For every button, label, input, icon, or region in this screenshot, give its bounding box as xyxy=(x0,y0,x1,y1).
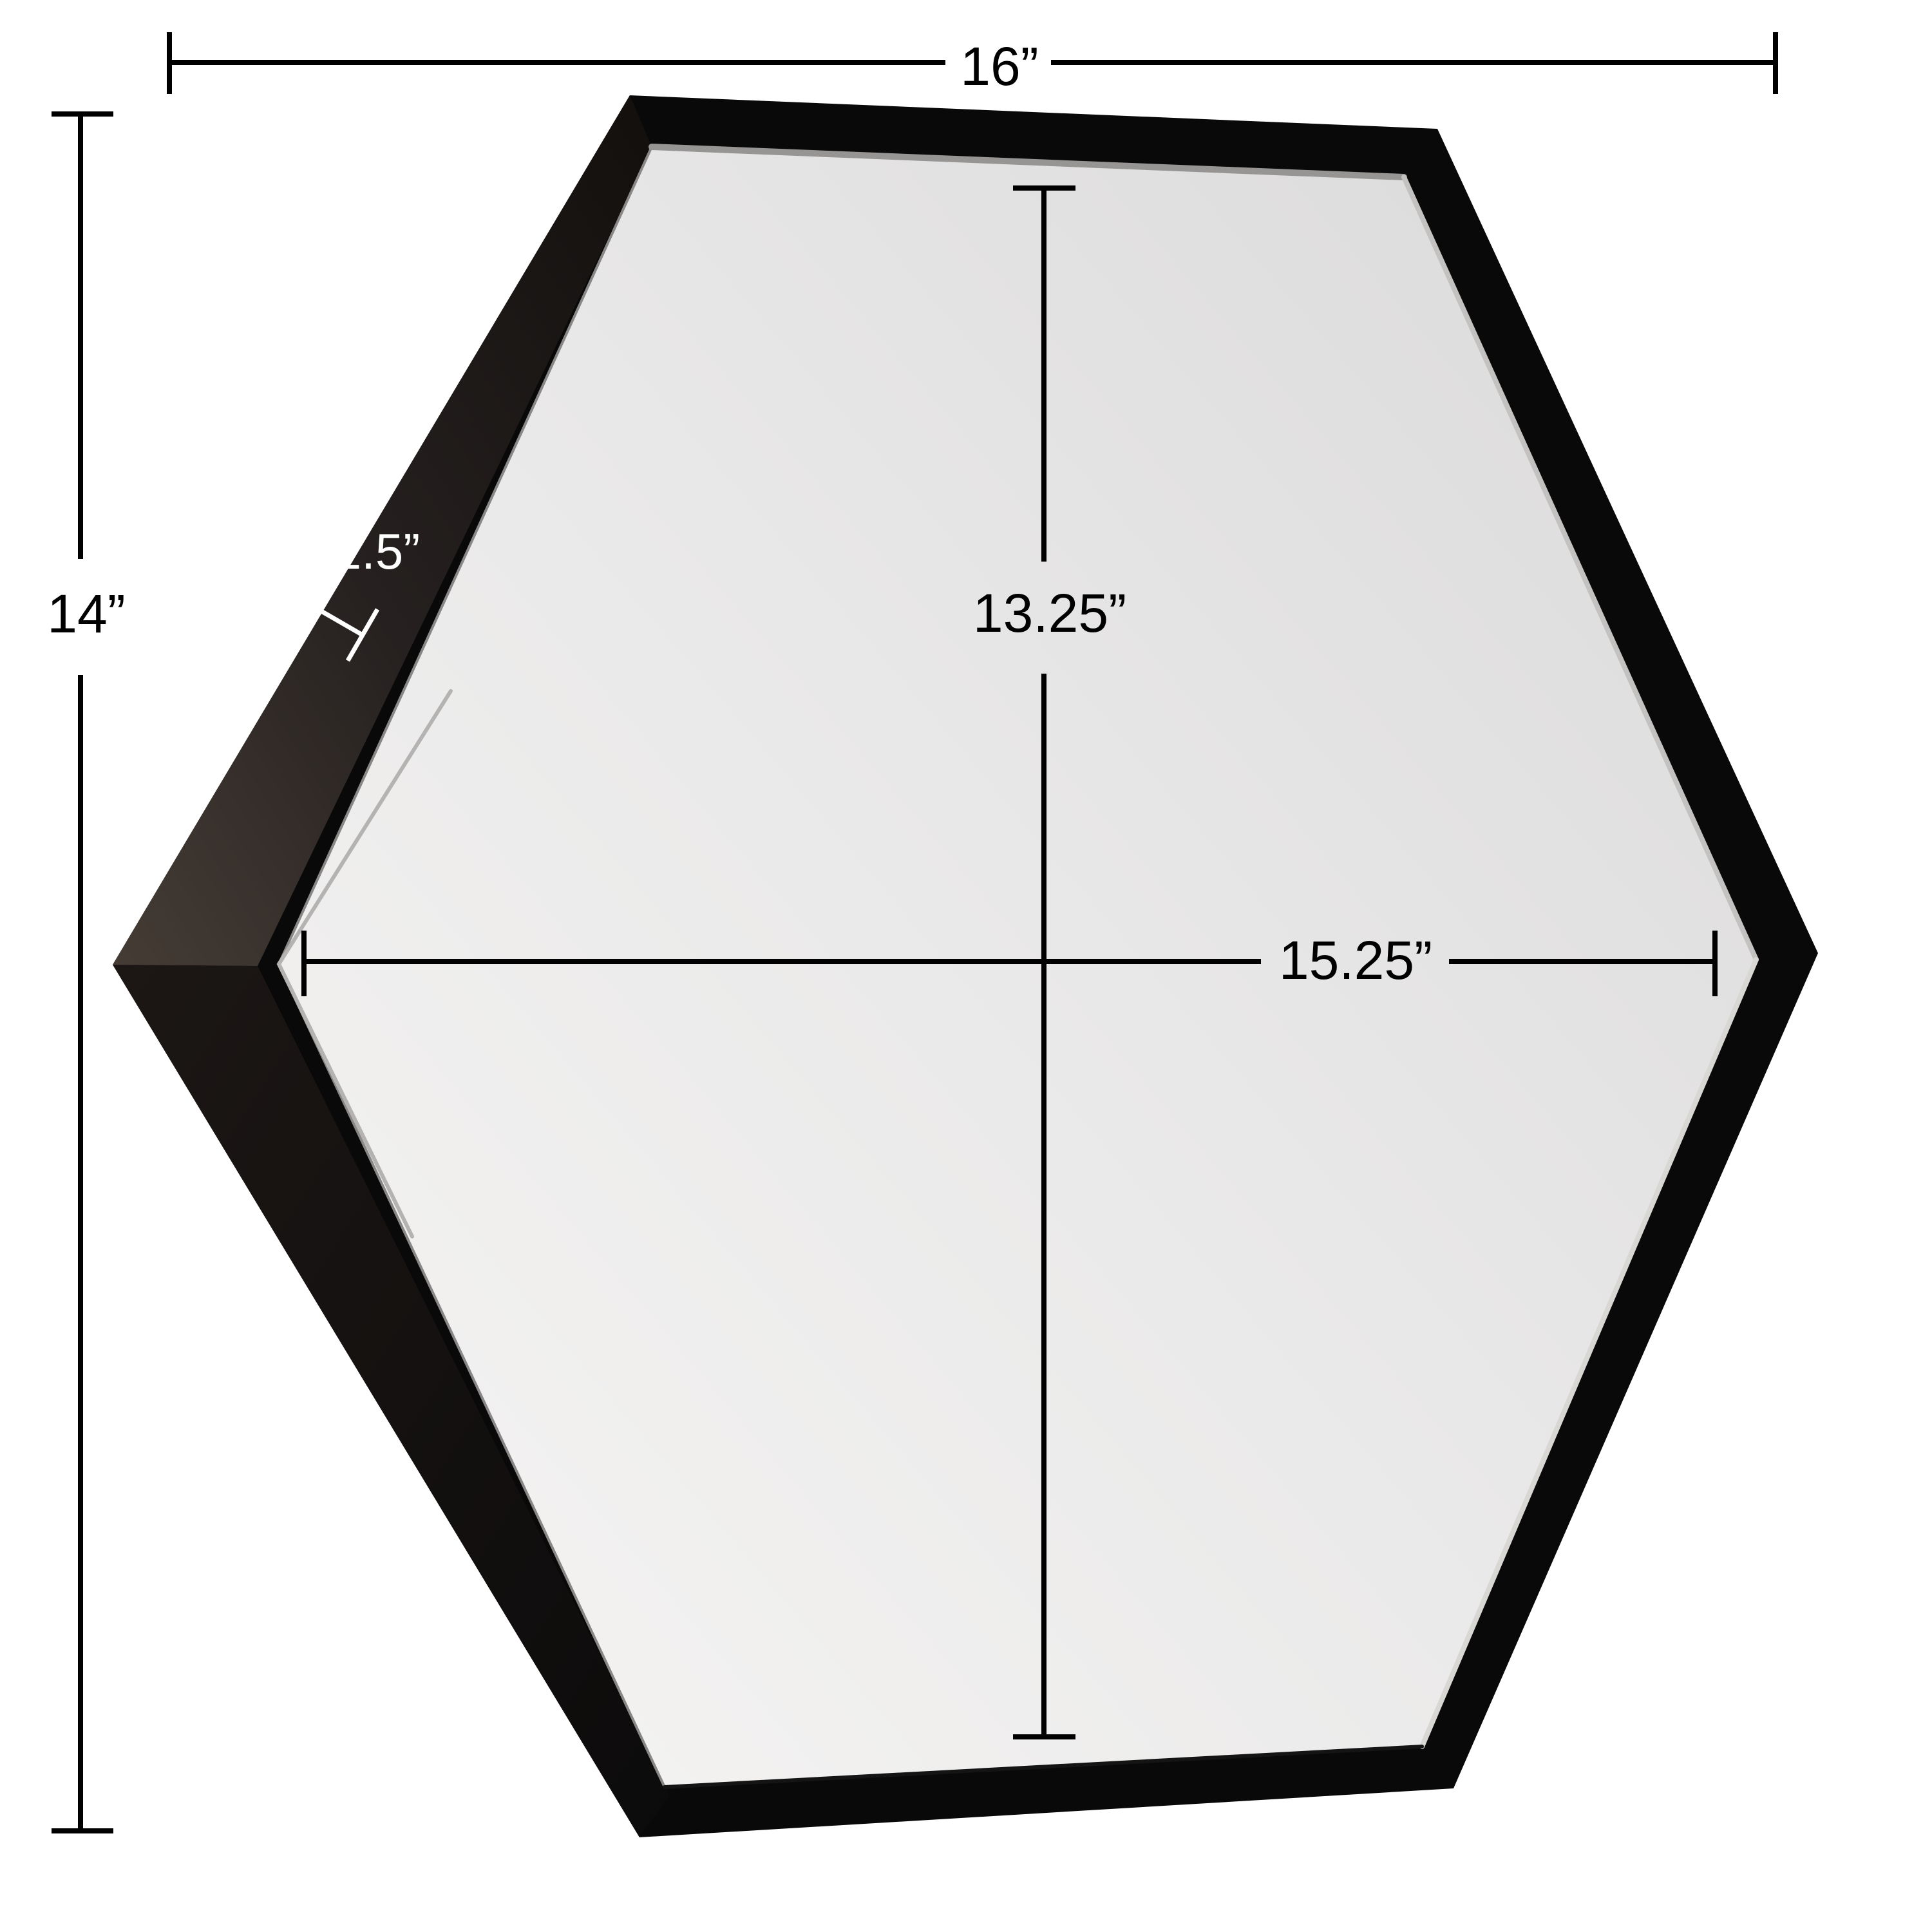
hexagon-mirror-dimension-diagram: 16” 14” 13.25” 15.25” xyxy=(0,0,1932,1932)
product-dimension-image: 16” 14” 13.25” 15.25” xyxy=(0,0,1932,1932)
dimension-label-overall-width: 16” xyxy=(960,36,1038,97)
dimension-label-frame-depth: 1.5” xyxy=(334,523,420,580)
dimension-label-mirror-height: 13.25” xyxy=(973,583,1126,643)
mirror-product xyxy=(113,95,1818,1837)
dimension-label-overall-height: 14” xyxy=(47,583,125,644)
dimension-tick xyxy=(290,576,319,627)
dimension-overall-width: 16” xyxy=(169,32,1776,97)
dimension-label-mirror-width: 15.25” xyxy=(1279,930,1432,990)
dimension-overall-height: 14” xyxy=(47,114,125,1831)
